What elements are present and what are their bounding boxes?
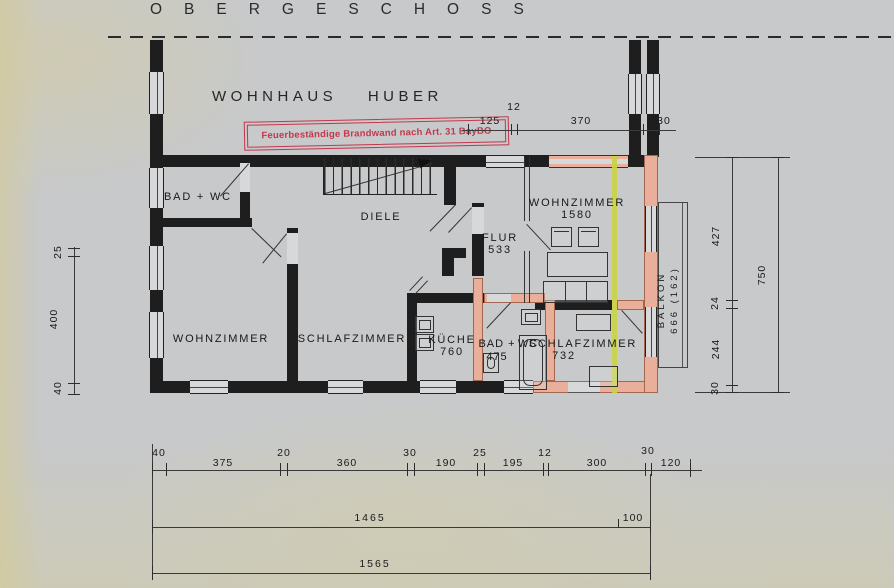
right-dim-tick xyxy=(772,157,784,158)
bottom-dim-line-2 xyxy=(152,527,650,528)
right-dim-line-inner xyxy=(732,157,733,393)
schlafzimmer-door-swing xyxy=(262,233,287,263)
bottom-dim-tick xyxy=(166,463,167,476)
dim-label: 300 xyxy=(582,457,612,469)
dim-label: 427 xyxy=(710,220,722,252)
wohn-schlaf-door-opening xyxy=(287,233,298,264)
bottom-dim-line-3 xyxy=(152,573,650,574)
balkon-label-block: BALKON 666 (162) xyxy=(648,260,688,340)
dim-label: 100 xyxy=(618,512,648,524)
bottom-dim-tick xyxy=(651,463,652,476)
room-label-schlafzimmer-left: SCHLAFZIMMER xyxy=(282,333,422,345)
sofa xyxy=(543,281,608,303)
left-dim-tick xyxy=(68,256,80,257)
room-label-diele: DIELE xyxy=(341,211,421,223)
room-area-wohnzimmer-new: 1580 xyxy=(517,209,637,221)
right-dim-tick xyxy=(726,300,738,301)
top-wall-window xyxy=(486,155,524,168)
room-area-schlafzimmer-new: 732 xyxy=(533,350,595,362)
room-label-flur: FLUR xyxy=(470,232,530,244)
dim-label: 24 xyxy=(709,290,721,316)
dim-label: 40 xyxy=(146,447,172,459)
dim-label: 12 xyxy=(504,101,524,113)
boundary-dashed-line xyxy=(108,36,894,38)
dim-label: 30 xyxy=(652,115,676,127)
bottom-wall-window-3 xyxy=(420,380,456,394)
room-area-flur: 533 xyxy=(470,244,530,256)
dim-label: 400 xyxy=(48,303,60,335)
bottom-dim-tick xyxy=(543,463,544,476)
top-dim-tick xyxy=(643,124,644,135)
left-dim-tick xyxy=(68,383,80,384)
top-dim-tick xyxy=(511,124,512,135)
dim-label: 125 xyxy=(478,115,502,127)
bad475-left-wall-new xyxy=(473,278,483,381)
upper-right-window-inner xyxy=(628,74,642,114)
bottom-dim-tick xyxy=(287,463,288,476)
floor-plan-sheet: OBERGESCHOSS WOHNHAUS HUBER Feuerbeständ… xyxy=(0,0,894,588)
dim-label: 1465 xyxy=(340,512,400,524)
bottom-dim-tick xyxy=(152,520,153,534)
dim-label: 370 xyxy=(568,115,594,127)
page-title: OBERGESCHOSS xyxy=(150,1,546,19)
dim-label: 195 xyxy=(498,457,528,469)
firewall-highlight-line xyxy=(612,156,617,393)
building-name: WOHNHAUS HUBER xyxy=(212,88,443,105)
bottom-wall-window-2 xyxy=(328,380,363,394)
room-label-schlafzimmer-new: SCHLAFZIMMER xyxy=(521,338,645,350)
table xyxy=(547,252,608,277)
dim-label: 40 xyxy=(52,375,64,401)
right-dim-tick xyxy=(772,392,784,393)
top-dim-tick xyxy=(517,124,518,135)
dim-label: 750 xyxy=(756,259,768,291)
armchair-2 xyxy=(578,227,599,247)
bottom-dim-tick xyxy=(477,463,478,476)
bottom-dim-line-1 xyxy=(152,470,702,471)
bad475-door-swing xyxy=(486,302,511,328)
bottom-wall-window-1 xyxy=(190,380,228,394)
dim-label: 120 xyxy=(656,457,686,469)
dim-label: 375 xyxy=(208,457,238,469)
bottom-dim-tick xyxy=(407,463,408,476)
room-label-wohnzimmer-new: WOHNZIMMER xyxy=(517,197,637,209)
bottom-dim-tick xyxy=(280,463,281,476)
dim-label: 25 xyxy=(52,239,64,265)
bottom-dim-tick xyxy=(645,463,646,476)
cabinet xyxy=(589,366,618,387)
armchair-1 xyxy=(551,227,572,247)
wohn1580-partition-lower xyxy=(524,251,530,303)
bath-sink xyxy=(521,309,541,325)
bottom-dim-tick xyxy=(650,520,651,534)
right-dim-tick xyxy=(726,385,738,386)
bad475-door-opening xyxy=(487,294,511,302)
bottom-dim-tick xyxy=(152,463,153,476)
balcony-door-swing xyxy=(621,310,643,334)
corner-wall-b xyxy=(442,248,454,276)
upper-right-window-outer xyxy=(646,74,660,114)
fire-wall-stamp: Feuerbeständige Brandwand nach Art. 31 B… xyxy=(244,116,510,151)
room-label-wohnzimmer-left: WOHNZIMMER xyxy=(151,333,291,345)
dim-label: 30 xyxy=(397,447,423,459)
badwc-bottom-wall xyxy=(150,218,252,227)
bottom-dim-tick xyxy=(152,566,153,580)
kueche-door-mark-1 xyxy=(409,276,423,291)
right-wall-window-1 xyxy=(645,206,657,252)
bottom-dim-tick xyxy=(650,566,651,580)
top-dim-tick xyxy=(468,124,469,135)
room-area-bad475: 475 xyxy=(477,351,517,363)
bottom-dim-tick xyxy=(548,463,549,476)
flur-door-opening xyxy=(472,207,484,234)
left-dim-line xyxy=(74,247,75,395)
dim-label: 190 xyxy=(431,457,461,469)
balkon-area: 666 (162) xyxy=(668,266,681,334)
dim-label: 30 xyxy=(709,375,721,401)
left-dim-tick xyxy=(68,248,80,249)
right-dim-tick xyxy=(726,392,738,393)
room-label-badwc-top: BAD + WC xyxy=(156,191,240,203)
dim-label: 30 xyxy=(635,445,661,457)
dim-label: 25 xyxy=(467,447,493,459)
room-label-bad475-left: BAD + xyxy=(477,338,517,350)
right-dim-tick xyxy=(726,308,738,309)
left-wall-window-2 xyxy=(149,246,164,290)
dim-label: 1565 xyxy=(345,558,405,570)
dim-label: 360 xyxy=(332,457,362,469)
dim-label: 244 xyxy=(710,333,722,365)
dim-label: 20 xyxy=(271,447,297,459)
bottom-dim-tick xyxy=(414,463,415,476)
wardrobe xyxy=(576,314,611,331)
bottom-dim-tick xyxy=(484,463,485,476)
kitchen-sink-1 xyxy=(415,316,434,333)
right-dim-line-outer xyxy=(778,157,779,393)
left-dim-tick xyxy=(68,394,80,395)
dim-label: 12 xyxy=(532,447,558,459)
flur-door-swing xyxy=(448,207,472,233)
upper-left-window xyxy=(149,72,164,114)
schlaf732-top-wall-new xyxy=(617,300,644,310)
bottom-dim-tick xyxy=(690,463,691,476)
balkon-label: BALKON xyxy=(655,272,668,329)
diele-right-wall xyxy=(444,155,456,205)
right-dim-tick xyxy=(726,157,738,158)
